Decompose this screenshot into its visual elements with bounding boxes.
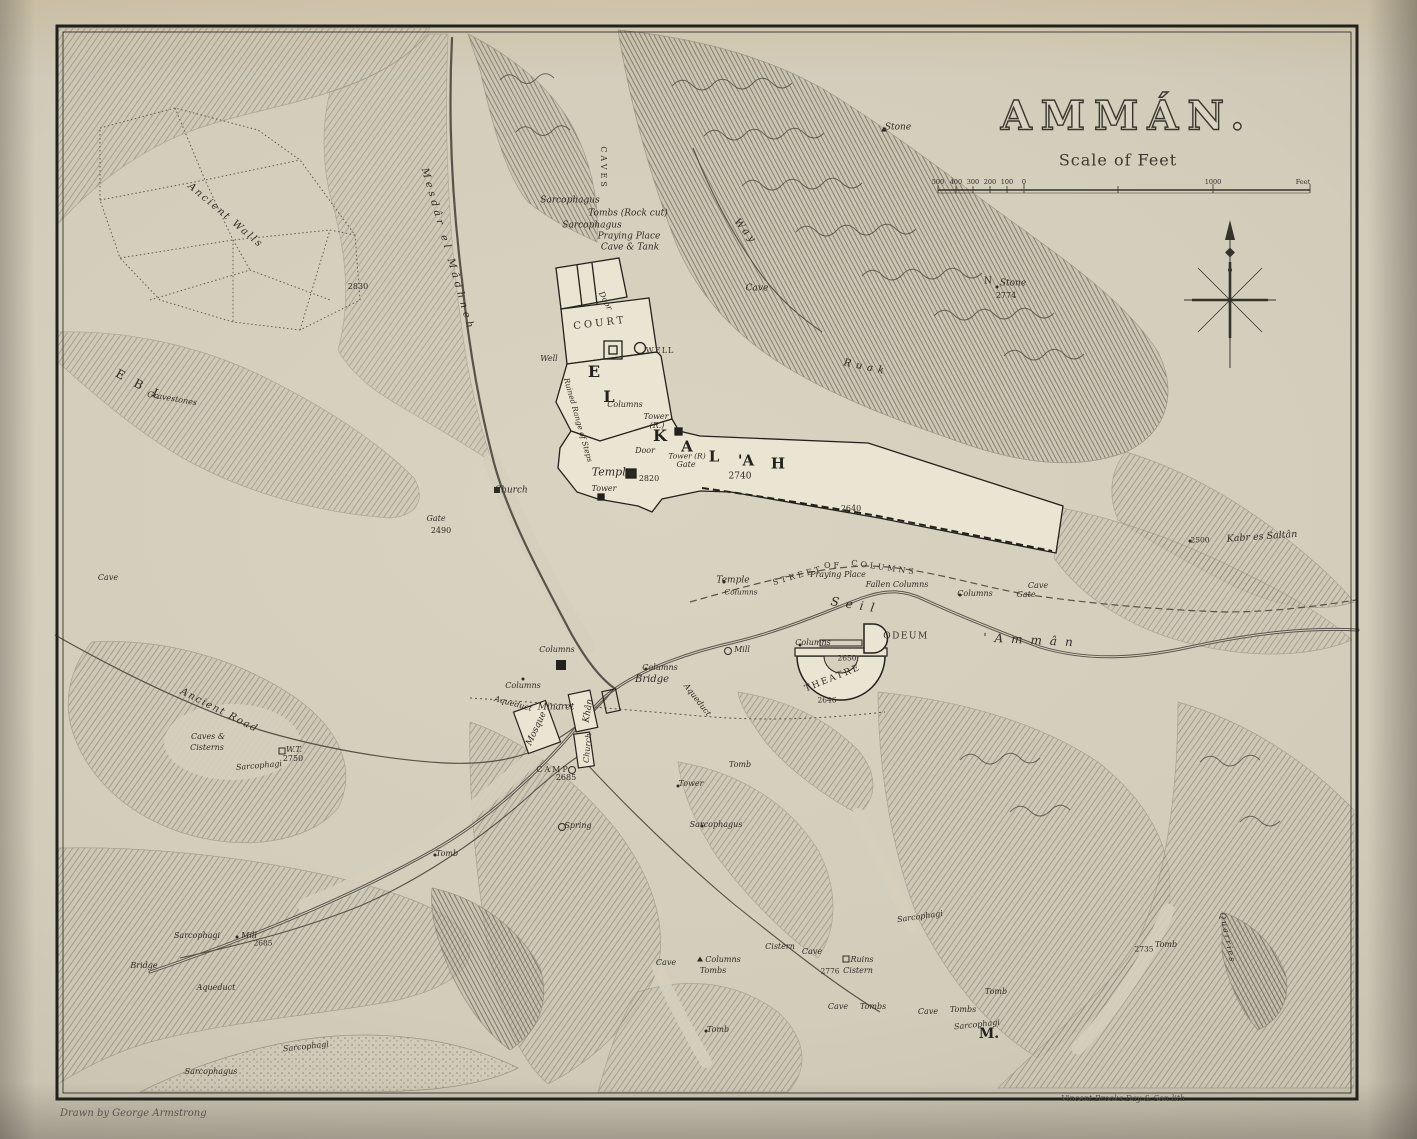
label-2750: 2750 <box>283 755 303 763</box>
label-cave: Cave <box>802 948 822 956</box>
label-columns: Columns <box>607 401 643 409</box>
dot-marker-icon <box>677 785 680 788</box>
label-door: Door <box>597 290 613 311</box>
label-gate: Gate <box>426 515 445 523</box>
label-sarcophagus: Sarcophagus <box>690 821 743 829</box>
circle-marker-icon <box>568 766 576 774</box>
label-tower-r: Tower (R) <box>668 452 705 460</box>
label-k: K <box>653 428 667 444</box>
label-2490: 2490 <box>431 527 451 535</box>
label-way: Way <box>732 217 759 246</box>
label-columns: Columns <box>505 682 541 690</box>
label-cave: Cave <box>828 1003 848 1011</box>
label-2820: 2820 <box>639 475 659 483</box>
label-church: Church <box>583 733 594 763</box>
label-sarcophagi: Sarcophagi <box>897 910 944 924</box>
label-200: 200 <box>984 179 996 186</box>
label-2740: 2740 <box>729 473 752 482</box>
label-ruined-range-of-steps: Ruined Range of Steps <box>562 377 593 463</box>
dot-marker-icon <box>1189 540 1192 543</box>
label-cisterns: Cisterns <box>190 744 224 752</box>
label-2650: 2650 <box>837 654 856 662</box>
label-2774: 2774 <box>996 292 1016 300</box>
label-r: (R.) <box>650 422 665 430</box>
label-theatre: THEATRE <box>804 664 863 695</box>
label-sarcophagus: Sarcophagus <box>185 1068 238 1076</box>
label-tower: Tower <box>644 413 669 421</box>
label-court: COURT <box>573 316 627 332</box>
label-columns: Columns <box>724 588 757 596</box>
label-a: 'A <box>738 454 754 469</box>
label-aqueduct: Aqueduct <box>493 695 533 713</box>
dot-marker-icon <box>434 854 437 857</box>
label-seil: Seil <box>830 595 882 615</box>
label-cave: Cave <box>656 959 676 967</box>
label-400: 400 <box>950 179 962 186</box>
label-tower: Tower <box>592 485 617 493</box>
label-tomb: Tomb <box>729 761 751 769</box>
label-w-t: W.T. <box>286 746 302 754</box>
label-cave: Cave <box>1028 582 1048 590</box>
label-mesd-r-el-m-dhneh: Mesdâr el Mâdhneh <box>419 167 475 333</box>
label-h: H <box>771 457 785 472</box>
label-well: Well <box>540 355 557 363</box>
label-ancient-road: Ancient Road <box>178 687 259 735</box>
label-e: E <box>588 364 600 380</box>
label-tomb: Tomb <box>707 1026 729 1034</box>
label-temple: Temple <box>716 577 749 586</box>
label-ruins: Ruins <box>851 956 874 964</box>
label-door: Door <box>635 447 655 455</box>
label-cistern: Cistern <box>843 967 873 975</box>
label-bridge: Bridge <box>130 962 157 970</box>
label-gate: Gate <box>676 461 695 469</box>
label-tombs: Tombs <box>860 1003 886 1011</box>
label-bridge: Bridge <box>635 675 669 685</box>
label-cave: Cave <box>746 285 769 294</box>
scale-caption: Scale of Feet <box>1059 151 1177 170</box>
dot-marker-icon <box>522 678 525 681</box>
square-marker-icon <box>279 748 286 755</box>
label-well: WELL <box>646 347 675 355</box>
label-aqueduct: Aqueduct <box>682 682 712 717</box>
label-tombs: Tombs <box>700 967 726 975</box>
label-2500: 2500 <box>1190 536 1209 544</box>
circle-marker-icon <box>558 823 566 831</box>
dot-marker-icon <box>996 286 999 289</box>
credit-drawn-by: Drawn by George Armstrong <box>60 1108 207 1119</box>
label-2735: 2735 <box>1134 945 1153 953</box>
label-2776: 2776 <box>820 967 839 975</box>
square-marker-icon <box>629 471 635 477</box>
label-columns: Columns <box>957 590 993 598</box>
label-cave-tank: Cave & Tank <box>601 244 659 253</box>
label-tombs-rock-cut: Tombs (Rock cut) <box>588 210 668 219</box>
label-cave: Cave <box>918 1008 938 1016</box>
label-of: OF <box>824 562 842 570</box>
label-100: 100 <box>1001 179 1013 186</box>
label-stone: Stone <box>885 124 911 133</box>
label-kh-n: Khân <box>583 699 596 724</box>
dot-marker-icon <box>236 936 239 939</box>
label-m: M. <box>979 1027 999 1041</box>
label-layer: 50040030020010001000FeetStoneStone2774NW… <box>0 0 1417 1139</box>
label-caves: CAVES <box>599 146 607 190</box>
square-marker-icon <box>843 956 850 963</box>
label-quarries: Quarries <box>1218 912 1237 964</box>
label-sarcophagi: Sarcophagi <box>283 1041 330 1054</box>
label-500: 500 <box>932 179 944 186</box>
label-ruak: Ruak <box>842 358 889 377</box>
label-0: 0 <box>1022 179 1026 186</box>
label-fallen-columns: Fallen Columns <box>866 581 929 589</box>
label-tomb: Tomb <box>1155 941 1177 949</box>
label-caves: Caves & <box>191 733 225 741</box>
label-gravestones: Gravestones <box>147 391 198 408</box>
map-plate: 50040030020010001000FeetStoneStone2774NW… <box>0 0 1417 1139</box>
label-tomb: Tomb <box>436 850 458 858</box>
dot-marker-icon <box>705 1030 708 1033</box>
label-2640: 2640 <box>841 505 861 513</box>
dot-marker-icon <box>959 594 962 597</box>
label-tombs: Tombs <box>950 1006 976 1014</box>
label-sarcophagus: Sarcophagus <box>562 222 621 231</box>
label-praying-place: Praying Place <box>598 233 661 242</box>
label-columns: Columns <box>642 664 678 672</box>
circle-marker-icon <box>724 647 732 655</box>
label-kabr-es-salt-n: Kabr es Saltân <box>1226 530 1297 544</box>
label-feet: Feet <box>1296 179 1310 186</box>
label-cave: Cave <box>98 574 118 582</box>
label-columns: Columns <box>705 956 741 964</box>
label-tower: Tower <box>679 780 704 788</box>
label-amm-n: 'Ammân <box>983 631 1081 648</box>
label-2830: 2830 <box>348 283 368 291</box>
label-odeum: ODEUM <box>883 633 928 642</box>
credit-lithographer: Vincent Brooks Day & Son lith <box>1061 1094 1185 1103</box>
map-title: AMMÁN. <box>1001 93 1254 140</box>
label-n: N <box>984 278 992 287</box>
dot-marker-icon <box>799 644 802 647</box>
label-2646: 2646 <box>817 696 836 704</box>
label-l: L <box>709 450 720 465</box>
label-sarcophagus: Sarcophagus <box>540 197 599 206</box>
label-mosque: Mosque <box>525 711 548 748</box>
label-300: 300 <box>967 179 979 186</box>
label-sarcophagi: Sarcophagi <box>236 760 283 772</box>
label-2685: 2685 <box>253 939 272 947</box>
label-praying-place: Praying Place <box>810 571 866 579</box>
dot-marker-icon <box>645 668 648 671</box>
label-1000: 1000 <box>1205 179 1222 186</box>
label-2685: 2685 <box>556 774 576 782</box>
label-gate: Gate <box>1016 591 1035 599</box>
label-temple: Temple <box>592 467 633 478</box>
label-mill: Mill <box>734 646 750 654</box>
dot-marker-icon <box>701 825 704 828</box>
label-sarcophagi: Sarcophagi <box>174 932 220 940</box>
triangle-marker-icon <box>881 127 887 132</box>
label-cistern: Cistern <box>765 943 795 951</box>
label-tomb: Tomb <box>985 988 1007 996</box>
label-ancient-walls: Ancient Walls <box>185 182 264 251</box>
label-aqueduct: Aqueduct <box>197 984 236 992</box>
label-spring: Spring <box>564 822 591 830</box>
label-columns: Columns <box>539 646 575 654</box>
square-marker-icon <box>494 487 500 493</box>
triangle-marker-icon <box>697 957 703 962</box>
dot-marker-icon <box>723 581 726 584</box>
label-stone: Stone <box>1000 280 1026 289</box>
